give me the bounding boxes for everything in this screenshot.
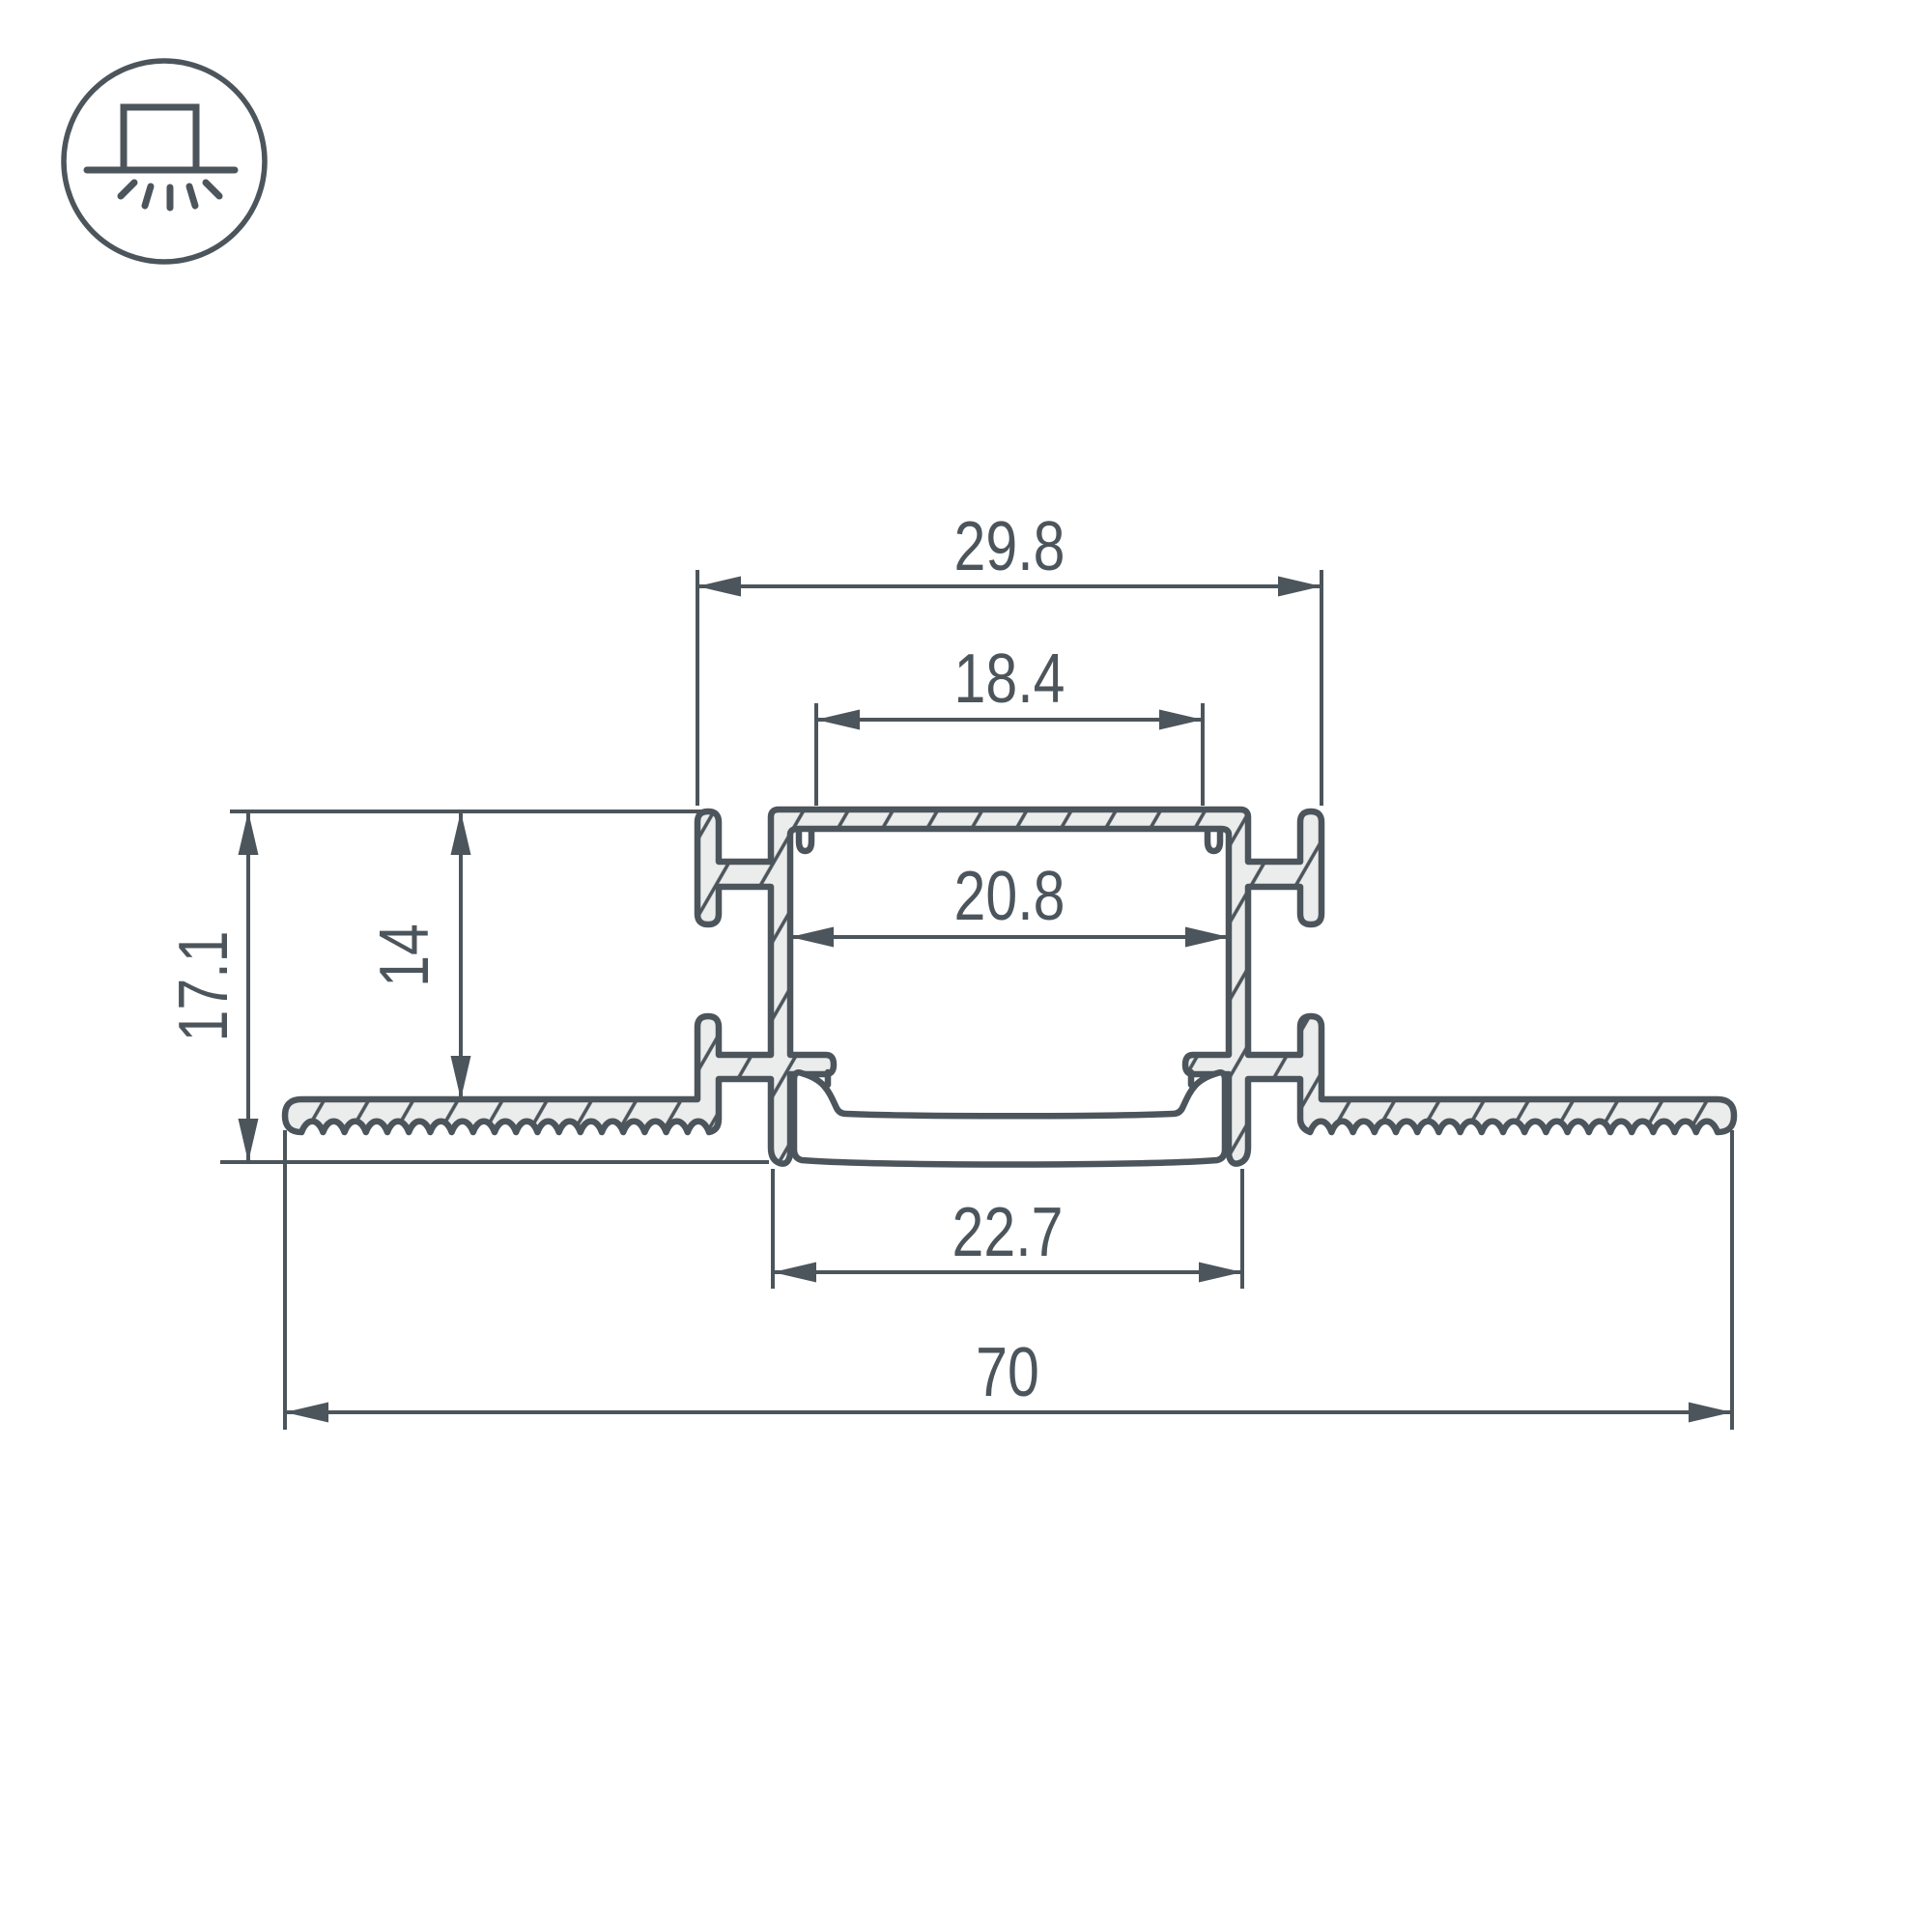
dimension-hook-inner-width: 18.4 <box>816 639 1203 806</box>
dimension-label: 18.4 <box>954 639 1065 717</box>
icon-light-rays <box>121 183 219 208</box>
led-hook-left <box>799 830 811 851</box>
icon-fixture-box <box>124 107 196 170</box>
dimension-overall-width: 70 <box>285 1130 1732 1430</box>
profile-cross-section-drawing: 29.8 18.4 20.8 14 17.1 22.7 <box>0 0 1932 1932</box>
recessed-mount-icon <box>64 61 265 262</box>
dimension-label: 70 <box>976 1332 1039 1410</box>
dimension-bottom-opening-width: 22.7 <box>773 1169 1242 1289</box>
diffuser-lens <box>794 1072 1225 1164</box>
dimension-label: 29.8 <box>954 506 1065 584</box>
led-hook-right <box>1207 830 1220 851</box>
drawing-page: 29.8 18.4 20.8 14 17.1 22.7 <box>0 0 1932 1932</box>
dimension-total-depth: 17.1 <box>163 811 258 1162</box>
dimension-label: 14 <box>364 923 442 987</box>
dimension-channel-depth: 14 <box>364 811 470 1099</box>
icon-circle <box>64 61 265 262</box>
dimension-label: 17.1 <box>163 931 241 1042</box>
dimension-channel-inner-width: 20.8 <box>790 856 1229 947</box>
dimension-label: 22.7 <box>952 1192 1064 1270</box>
dimension-label: 20.8 <box>954 856 1065 934</box>
